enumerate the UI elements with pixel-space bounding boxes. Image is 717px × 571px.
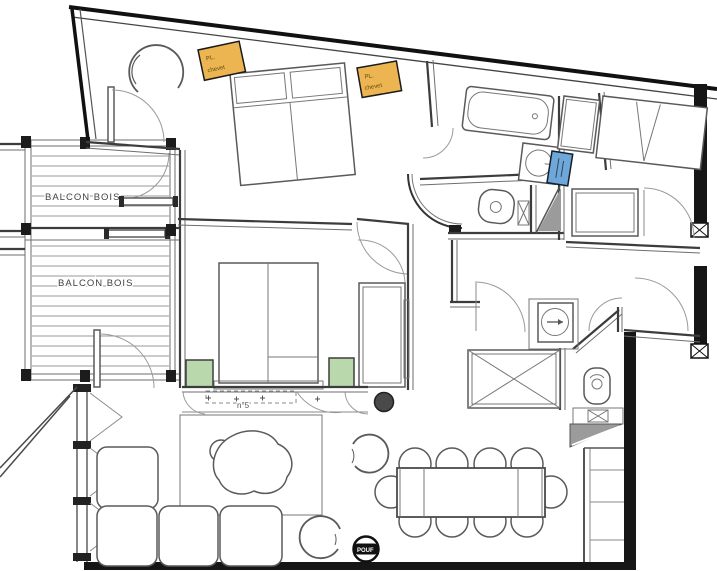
structural-column [375, 393, 394, 412]
divider-handle [108, 230, 165, 237]
round-armchair-bedroom1 [129, 45, 183, 92]
exterior-diagonal-1 [0, 387, 77, 468]
single-bed [596, 96, 707, 169]
exterior-wall-stubs [0, 144, 25, 255]
wc1-hatch [536, 186, 561, 233]
bedroom2-door [357, 219, 409, 282]
coffee-table [213, 431, 291, 494]
top-right-wardrobe [572, 189, 638, 236]
wc1-vent-box [518, 201, 529, 225]
balcony-lower-door [94, 330, 154, 388]
bedroom1: PL. chevet PL. chevet [108, 41, 402, 185]
washbasin-2 [538, 303, 573, 342]
left-wall-top [72, 9, 88, 140]
balcony: BALCON BOIS BALCON BOIS [0, 136, 180, 388]
nightstand-left [186, 360, 213, 387]
note-blue-bg [547, 151, 573, 186]
sofa-chaise [97, 447, 158, 509]
floor-plan-drawing: BALCON BOIS BALCON BOIS [0, 0, 717, 571]
pouf-label: POUF [357, 548, 374, 554]
floor-plan: BALCON BOIS BALCON BOIS [0, 0, 717, 571]
fixing-marks [206, 396, 320, 402]
bathroom1-door-arc [423, 128, 453, 158]
room5-band: n°5 [182, 387, 394, 414]
double-bed-1 [230, 63, 355, 186]
kitchen-counter [584, 448, 624, 562]
pouf: POUF [354, 537, 379, 562]
sofa-cushion-2 [159, 506, 218, 566]
bedroom1-balcony-door [108, 87, 164, 142]
balcony-divider [25, 228, 180, 240]
toilet-2 [584, 368, 610, 404]
room-number-label: n°5 [237, 401, 250, 410]
post-marker-2 [691, 344, 708, 358]
living-room: POUF [97, 415, 388, 566]
bathtub [462, 86, 555, 140]
curved-wall [408, 174, 462, 234]
bathroom-cabinet [558, 96, 600, 153]
nightstand-right [329, 358, 354, 387]
balcony-planks-upper [32, 156, 169, 216]
balcony-upper-door [119, 153, 178, 207]
dining-table [397, 468, 545, 517]
double-bed-2 [214, 263, 323, 389]
armchair-1 [352, 435, 388, 473]
note-right-bg [357, 61, 402, 97]
note-right-nightstand: PL. chevet [357, 61, 402, 97]
bedroom2 [186, 263, 409, 389]
left-wall-top-inner [80, 9, 96, 139]
sofa-cushion-1 [97, 506, 157, 566]
top-right-room-door [644, 188, 694, 238]
dining-area [375, 448, 567, 537]
right-wall-mid [694, 266, 707, 344]
note-blue-tag [547, 151, 573, 186]
right-inner-wall [624, 332, 636, 564]
balcony-lower-label: BALCON BOIS [58, 278, 133, 289]
bathroom2-door [475, 282, 525, 332]
toilet-1 [477, 188, 516, 225]
bathroom2 [468, 299, 623, 447]
wardrobe-bedroom2 [359, 283, 409, 387]
divider-endblock-left [104, 228, 109, 239]
balcony-upper-label: BALCON BOIS [45, 192, 120, 203]
entry-hatch [570, 424, 622, 447]
armchair-2 [300, 516, 340, 558]
shower-tray [468, 350, 560, 408]
sofa-cushion-3 [220, 506, 282, 566]
window-opening-1 [90, 393, 122, 441]
exterior-diagonal-2 [0, 396, 70, 477]
washer-box [573, 408, 623, 424]
